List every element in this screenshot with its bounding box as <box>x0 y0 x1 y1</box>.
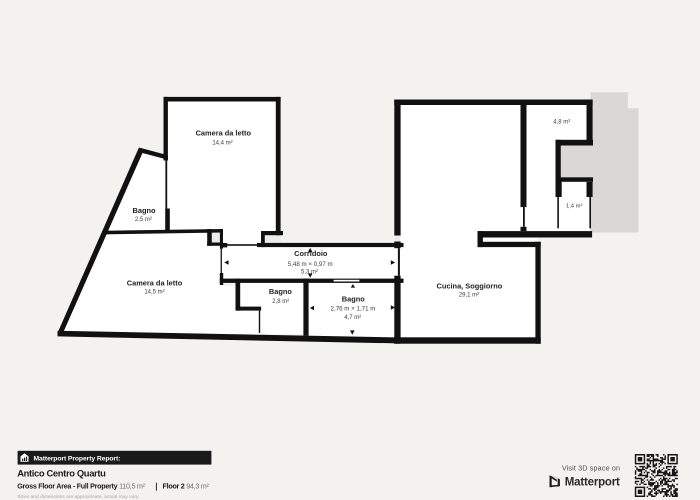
svg-text:Corridoio: Corridoio <box>294 249 328 258</box>
svg-text:4,8 m²: 4,8 m² <box>553 119 570 125</box>
svg-text:2,5 m²: 2,5 m² <box>135 217 152 223</box>
svg-text:Sizes and dimensions are appro: Sizes and dimensions are approximate, ac… <box>17 494 139 500</box>
svg-text:29,1 m²: 29,1 m² <box>459 293 479 299</box>
svg-text:4,7 m²: 4,7 m² <box>344 315 361 321</box>
svg-text:Bagno: Bagno <box>342 295 365 304</box>
svg-text:2,76 m × 1,71 m: 2,76 m × 1,71 m <box>331 306 376 313</box>
svg-text:5,48 m × 0,97 m: 5,48 m × 0,97 m <box>288 261 333 268</box>
svg-text:Gross Floor Area - Full Proper: Gross Floor Area - Full Property 110,5 m… <box>17 482 145 491</box>
svg-text:5,3 m²: 5,3 m² <box>301 270 318 276</box>
svg-text:2,8 m²: 2,8 m² <box>272 299 289 305</box>
svg-text:Antico Centro Quartu: Antico Centro Quartu <box>17 467 106 478</box>
svg-text:Floor 2 94,3 m²: Floor 2 94,3 m² <box>163 482 210 491</box>
svg-text:Camera da letto: Camera da letto <box>196 129 252 138</box>
svg-text:Matterport Property Report:: Matterport Property Report: <box>34 455 121 462</box>
svg-text:Bagno: Bagno <box>133 206 156 215</box>
svg-text:1,4 m²: 1,4 m² <box>566 204 582 210</box>
svg-text:Bagno: Bagno <box>269 287 292 296</box>
svg-text:Cucina, Soggiorno: Cucina, Soggiorno <box>437 281 503 290</box>
svg-text:14,5 m²: 14,5 m² <box>144 290 164 296</box>
svg-text:Camera da letto: Camera da letto <box>127 278 183 287</box>
svg-text:14,4 m²: 14,4 m² <box>212 140 232 146</box>
svg-text:Visit 3D space on: Visit 3D space on <box>562 464 620 473</box>
svg-text:Matterport: Matterport <box>565 477 620 489</box>
